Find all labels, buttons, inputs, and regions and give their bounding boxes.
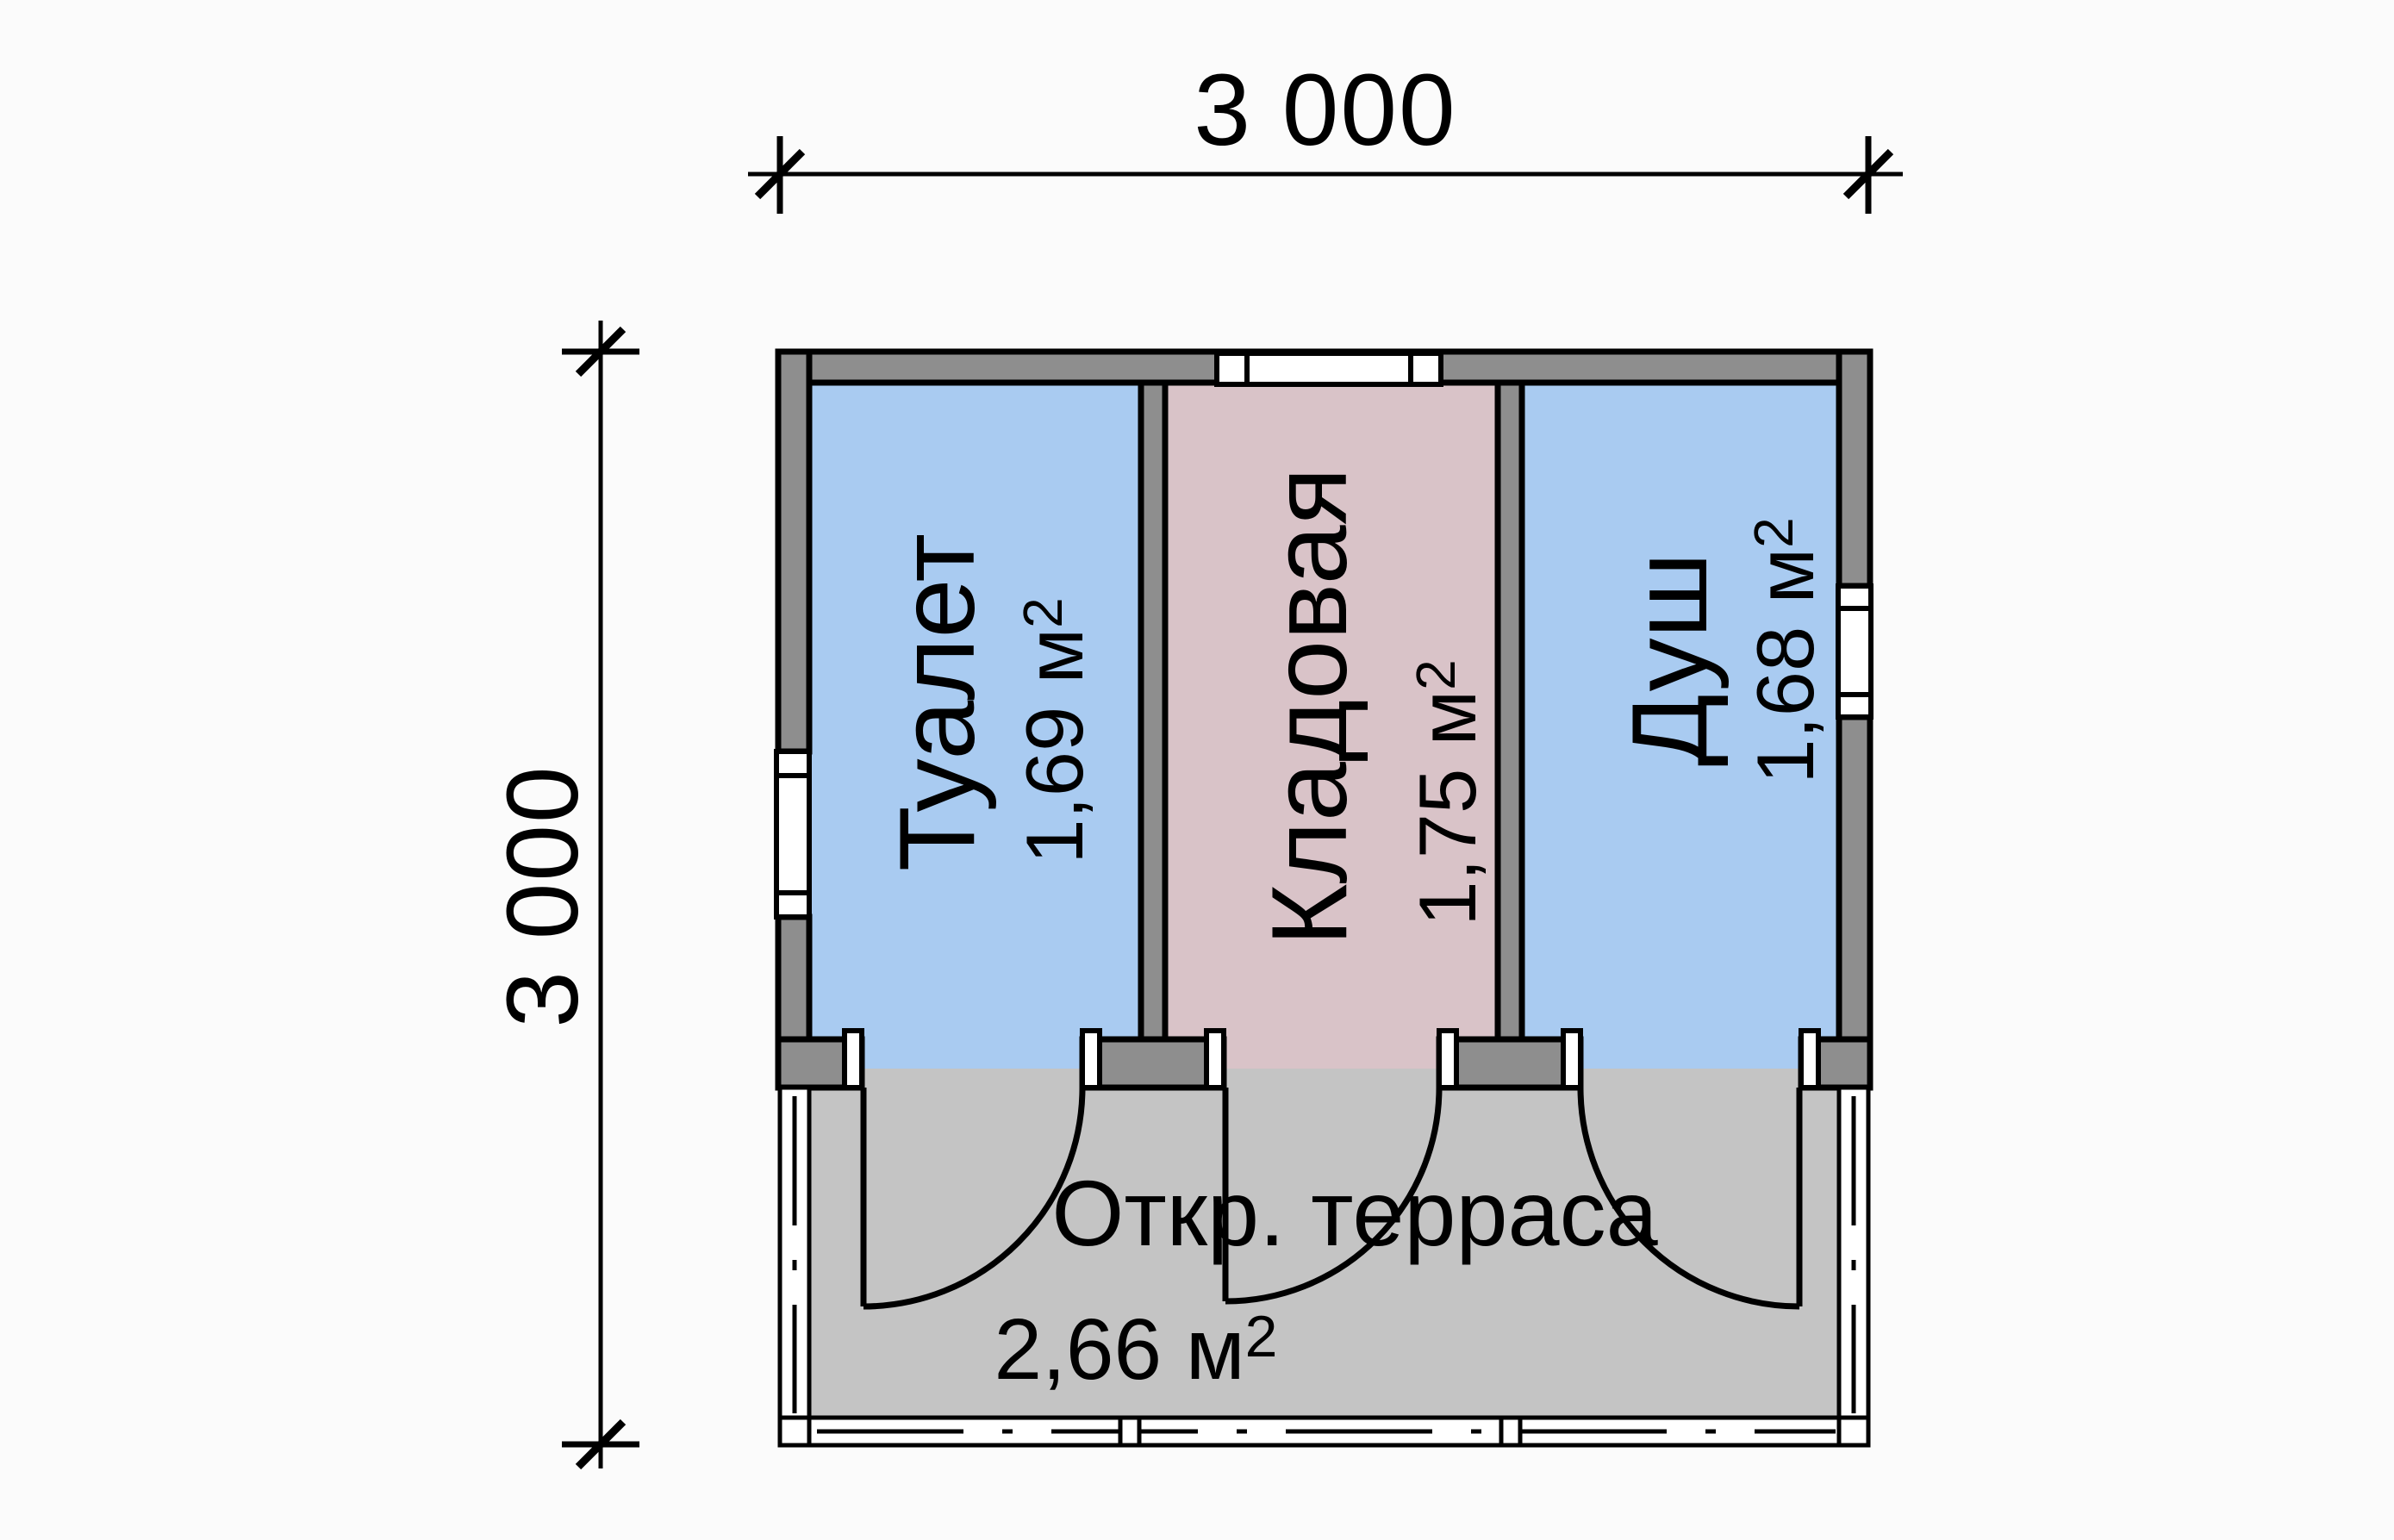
right-window	[1838, 586, 1871, 717]
toilet-room-label: Туалет	[884, 533, 991, 871]
shower-area-value: 1,68	[1740, 627, 1830, 784]
shower-room-area: 1,68 м2	[1745, 517, 1826, 783]
jamb-shower-right	[1801, 1031, 1818, 1088]
toilet-area-exponent: 2	[1012, 597, 1074, 628]
terrace-area-exponent: 2	[1245, 1304, 1278, 1369]
left-window	[776, 751, 809, 917]
railing-post-1	[1120, 1418, 1139, 1445]
terrace-area-value: 2,66	[994, 1301, 1162, 1398]
right-wall-upper	[1839, 352, 1870, 586]
right-window-frame	[1838, 586, 1871, 717]
jamb-shower-left	[1563, 1031, 1580, 1088]
storage-area-unit: м	[1402, 690, 1493, 746]
dimension-label-top: 3 000	[1194, 59, 1456, 161]
shower-area-unit: м	[1740, 548, 1830, 604]
partition-storage-shower	[1498, 383, 1522, 1039]
toilet-room-area: 1,69 м2	[1014, 597, 1095, 864]
terrace-area: 2,66 м2	[994, 1306, 1277, 1393]
shower-room-label: Душ	[1617, 552, 1724, 766]
toilet-area-value: 1,69	[1009, 707, 1100, 864]
terrace-label: Откр. терраса	[1051, 1167, 1657, 1260]
storage-room-label: Кладовая	[1256, 467, 1363, 945]
toilet-area-unit: м	[1009, 628, 1100, 684]
t-stub-1	[1082, 1039, 1224, 1088]
shower-area-exponent: 2	[1743, 517, 1805, 548]
dimension-label-left: 3 000	[492, 764, 594, 1027]
railing-post-2	[1501, 1418, 1520, 1445]
terrace-area-unit: м	[1186, 1301, 1245, 1398]
jamb-toilet-right	[1082, 1031, 1100, 1088]
top-window	[1217, 353, 1441, 384]
storage-area-value: 1,75	[1402, 769, 1493, 926]
jamb-storage-right	[1439, 1031, 1456, 1088]
jamb-storage-left	[1206, 1031, 1224, 1088]
top-window-frame	[1217, 353, 1441, 384]
railing-post-se	[1839, 1418, 1868, 1445]
storage-room-area: 1,75 м2	[1407, 659, 1488, 926]
floor-plan-page: 3 000 3 000 Туалет 1,69 м2 Кладовая 1,75…	[0, 0, 2394, 1540]
storage-area-exponent: 2	[1405, 659, 1467, 690]
t-stub-2	[1439, 1039, 1580, 1088]
railing-post-sw	[780, 1418, 809, 1445]
left-wall-upper	[778, 352, 809, 751]
right-wall-lower	[1839, 717, 1870, 1088]
partition-toilet-storage	[1141, 383, 1165, 1039]
jamb-toilet-left	[845, 1031, 862, 1088]
